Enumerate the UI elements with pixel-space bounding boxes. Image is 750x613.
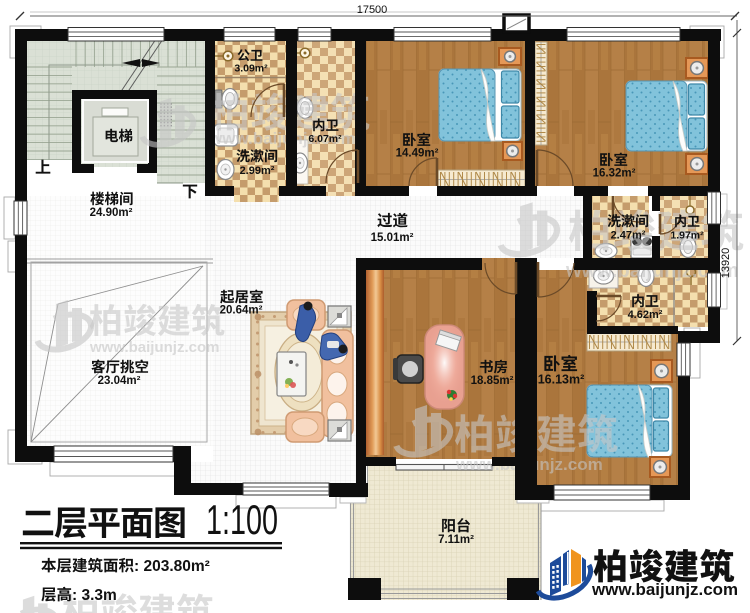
svg-text:16.32m²: 16.32m² [593,168,636,180]
svg-text:www.baijunjz.com: www.baijunjz.com [591,581,738,599]
svg-text:3.09m²: 3.09m² [234,63,268,75]
svg-text:1:100: 1:100 [206,496,278,543]
svg-text:18.85m²: 18.85m² [471,375,514,387]
svg-text:14.49m²: 14.49m² [396,148,439,160]
svg-text:16.13m²: 16.13m² [538,373,585,387]
svg-text:17500: 17500 [357,4,388,16]
svg-text:2.99m²: 2.99m² [240,165,275,177]
svg-text:20.64m²: 20.64m² [220,305,263,317]
svg-text:4.62m²: 4.62m² [628,309,663,321]
svg-text:7.11m²: 7.11m² [438,534,474,546]
svg-text:2.47m²: 2.47m² [611,230,646,242]
svg-text:6.07m²: 6.07m² [308,133,342,145]
svg-text:24.90m²: 24.90m² [90,207,133,219]
svg-text:13920: 13920 [720,248,732,279]
svg-text:: 203.80m²: : 203.80m² [134,558,210,575]
svg-text:15.01m²: 15.01m² [371,232,414,244]
svg-text:1.97m²: 1.97m² [670,230,704,242]
svg-text:www.baijunjz.com: www.baijunjz.com [89,339,219,356]
svg-text:23.04m²: 23.04m² [98,375,141,387]
svg-text:: 3.3m: : 3.3m [72,587,117,604]
